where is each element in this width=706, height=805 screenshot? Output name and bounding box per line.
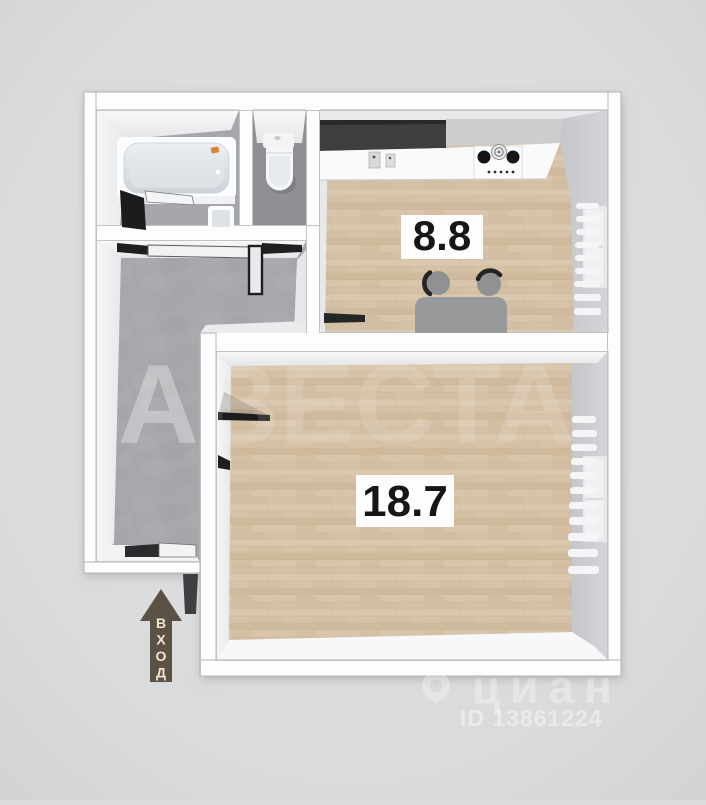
svg-text:18.7: 18.7 xyxy=(362,477,448,526)
svg-text:8.8: 8.8 xyxy=(413,212,471,259)
svg-text:В: В xyxy=(156,615,166,631)
svg-text:Х: Х xyxy=(156,632,166,648)
svg-text:Д: Д xyxy=(156,665,166,681)
svg-text:О: О xyxy=(156,648,167,664)
svg-text:ID 13861224: ID 13861224 xyxy=(460,705,603,731)
